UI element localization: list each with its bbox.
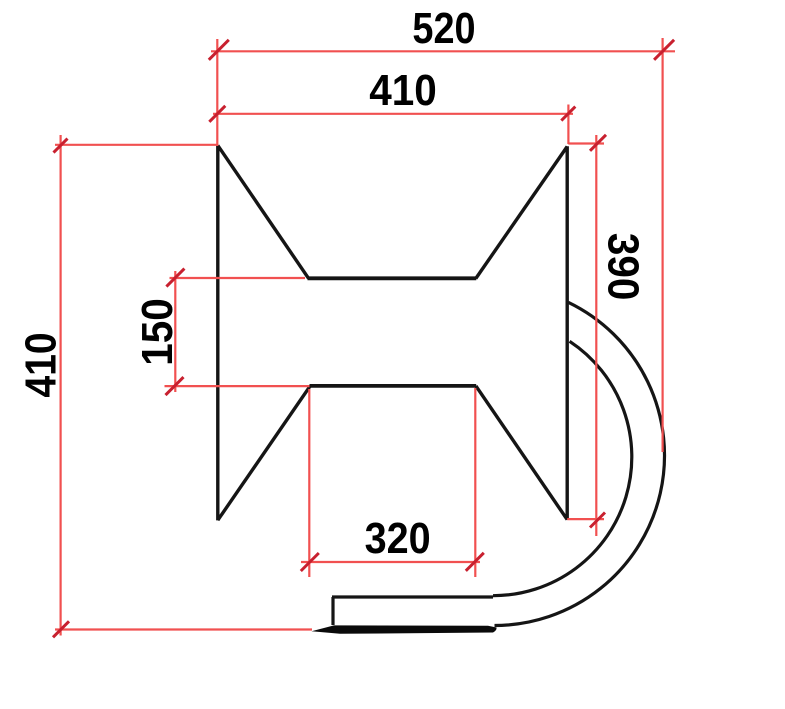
svg-text:410: 410	[16, 332, 66, 397]
svg-text:520: 520	[412, 3, 475, 52]
svg-text:390: 390	[599, 233, 648, 301]
svg-text:320: 320	[365, 513, 431, 562]
svg-text:410: 410	[369, 65, 437, 114]
svg-text:150: 150	[132, 298, 181, 366]
